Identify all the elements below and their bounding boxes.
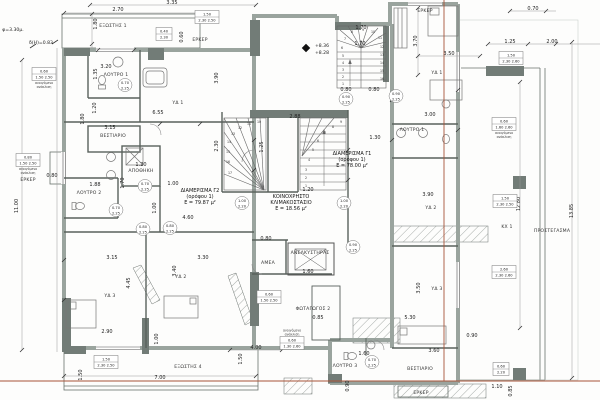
- svg-text:0.60: 0.60: [497, 365, 506, 369]
- stair-tread-number: 6: [317, 139, 319, 143]
- room-label: ΕΡΚΕΡ: [417, 8, 432, 14]
- dimension-label: 2.90: [101, 329, 112, 335]
- window-tag: 1.502.30 2.50: [195, 11, 219, 24]
- window-tag: 0.602.20: [493, 363, 509, 376]
- stair-tread-number: 11: [247, 122, 251, 126]
- svg-text:0.70: 0.70: [121, 81, 130, 85]
- svg-text:1.50 2.50: 1.50 2.50: [19, 162, 37, 166]
- dimension-label: 0.85: [312, 315, 323, 321]
- svg-text:2.30 2.60: 2.30 2.60: [495, 274, 513, 278]
- dimension-label: 1.25: [259, 141, 265, 152]
- dimension-label: 7.00: [154, 375, 165, 381]
- dimension-label: 1.50: [78, 369, 84, 380]
- stair-tread-number: 7: [324, 131, 326, 135]
- dimension-label: 11.00: [14, 199, 20, 213]
- svg-text:1.50: 1.50: [102, 358, 111, 362]
- door-tag: 0.902.25: [346, 241, 360, 254]
- bed: [164, 296, 198, 318]
- stair-tread-number: 13: [231, 132, 235, 136]
- svg-text:1.50 2.50: 1.50 2.50: [35, 76, 53, 80]
- svg-text:0.90: 0.90: [342, 95, 351, 99]
- dimension-label: 3.50: [443, 51, 454, 57]
- svg-text:0.90: 0.90: [392, 92, 401, 96]
- dimension-label: 3.70: [413, 35, 419, 46]
- stair-tread-number: 3: [342, 68, 344, 72]
- stair-tread-number: 10: [371, 30, 375, 34]
- dimension-label: 3.90: [422, 192, 433, 198]
- svg-text:2.25: 2.25: [368, 364, 376, 368]
- room-label: ΥΔ 1: [171, 100, 183, 106]
- svg-text:2.30 2.50: 2.30 2.50: [97, 364, 115, 368]
- dimension-label: 1.88: [89, 182, 100, 188]
- room-label: ΥΔ 2: [424, 205, 436, 211]
- annotation-label: +8.28: [315, 50, 329, 56]
- svg-text:0.60: 0.60: [40, 70, 49, 74]
- room-label: ΥΔ 3: [103, 293, 115, 299]
- stair-tread-number: 1: [305, 184, 307, 188]
- room-label: ΥΔ 1: [430, 70, 442, 76]
- svg-text:1.50: 1.50: [501, 197, 510, 201]
- dimension-label: 1.00: [154, 333, 160, 344]
- room-label: ΕΡΚΕΡ: [413, 390, 428, 396]
- dimension-label: 1.60: [358, 351, 369, 357]
- window-tag: 0.801.50 2.50ανοιγόμενοανάκλιση: [16, 154, 40, 176]
- stair-tread-number: 2: [305, 176, 307, 180]
- room-label: ΕΞΩΣΤΗΣ 4: [174, 364, 202, 370]
- room-label: ΛΟΥΤΡΟ 2: [77, 190, 102, 196]
- stair-tread-number: 15: [380, 69, 384, 73]
- stair-tread-number: 10: [257, 120, 261, 124]
- dimension-label: 3.00: [424, 112, 435, 118]
- svg-text:1.60 2.60: 1.60 2.60: [495, 126, 513, 130]
- dimension-label: 1.80: [93, 18, 99, 29]
- svg-text:2.25: 2.25: [342, 101, 350, 105]
- dimension-label: 1.30: [369, 135, 380, 141]
- window-tag: 0.601.60 2.60ανοιγόμενοανάκλιση: [492, 118, 516, 140]
- dimension-label: 1.60: [302, 269, 313, 275]
- svg-text:0.60: 0.60: [265, 293, 274, 297]
- svg-text:2.25: 2.25: [139, 231, 147, 235]
- toilet: [348, 353, 357, 360]
- svg-text:1.50: 1.50: [507, 54, 516, 58]
- svg-text:2.25: 2.25: [112, 212, 120, 216]
- stair-tread-number: 15: [226, 150, 230, 154]
- sink: [113, 57, 123, 67]
- stair-tread-number: 4: [342, 61, 344, 65]
- dimension-label: 3.15: [104, 125, 115, 131]
- svg-text:ανάκλιση: ανάκλιση: [37, 85, 52, 89]
- dimension-label: 2.88: [289, 114, 300, 120]
- dimension-label: 1.00: [152, 202, 158, 213]
- annotation-label: φ=3.30μ.: [2, 27, 24, 33]
- annotation-label: +8.36: [315, 43, 329, 49]
- stair-tread-number: 7: [344, 37, 346, 41]
- window-tag: 0.601.50 2.50ανοιγόμενοανάκλιση: [32, 68, 56, 90]
- door-tag: 0.702.25: [365, 356, 379, 369]
- dimension-label: 3.35: [166, 0, 177, 6]
- dimension-label: 0.80: [260, 236, 271, 242]
- bed: [398, 326, 446, 344]
- dimension-label: 5.30: [404, 315, 415, 321]
- svg-text:0.80: 0.80: [166, 224, 175, 228]
- dimension-label: 3.90: [214, 72, 220, 83]
- stair-tread-number: 17: [228, 171, 232, 175]
- room-label: ΒΕΣΤΙΑΡΙΟ: [100, 133, 126, 139]
- dimension-label: 1.70: [120, 177, 126, 188]
- stair-tread-number: 4: [308, 158, 310, 162]
- dimension-label: 0.85: [508, 385, 514, 396]
- svg-text:2.20: 2.20: [340, 205, 349, 209]
- apartment-label: Ε = 78.00 μ²: [336, 163, 368, 169]
- door-tag: 0.902.25: [389, 90, 403, 103]
- stair-tread-number: 5: [342, 54, 344, 58]
- stair-tread-number: 14: [227, 140, 231, 144]
- svg-text:1.50: 1.50: [203, 13, 212, 17]
- svg-text:2.30: 2.30: [160, 36, 169, 40]
- dimension-label: 0.80: [340, 87, 351, 93]
- floor-plan-drawing: ΔΙΑΜΕΡΙΣΜΑ Γ2(ορόφου 1)Ε = 79.87 μ²ΚΟΙΝΟ…: [0, 0, 600, 400]
- room-label: ΕΡΚΕΡ: [20, 177, 35, 183]
- dimension-label: 2.00: [546, 39, 557, 45]
- svg-text:1.30 2.60: 1.30 2.60: [283, 345, 301, 349]
- stair-tread-number: 6: [341, 46, 343, 50]
- svg-text:0.40: 0.40: [160, 30, 169, 34]
- svg-text:2.30 2.60: 2.30 2.60: [502, 60, 520, 64]
- window-tag: 0.601.50 2.50: [257, 291, 281, 304]
- door-tag: 1.002.20: [337, 197, 351, 210]
- annotation-label: δ(Η)=0.83: [29, 40, 53, 46]
- room-label: ΑΝΕΛΚΥΣΤΗΡΑΣ: [291, 250, 330, 256]
- room-label: ΚΧ 1: [501, 224, 512, 230]
- stair-tread-number: 12: [238, 126, 242, 130]
- svg-text:2.20: 2.20: [497, 371, 506, 375]
- stair-tread-number: 12: [380, 45, 384, 49]
- stair-tread-number: 9: [340, 120, 342, 124]
- door-tag: 0.902.25: [339, 93, 353, 106]
- window-tag: 0.402.30: [156, 28, 172, 41]
- svg-text:0.70: 0.70: [368, 358, 377, 362]
- room-label: ΥΔ 3: [430, 286, 442, 292]
- window-tag: 2.602.30 2.60: [492, 266, 516, 279]
- dimension-label: 4.45: [126, 277, 132, 288]
- window-tag: 0.601.30 2.60ανοιγόμενοανάκλιση: [280, 329, 304, 350]
- dimension-label: 6.55: [152, 110, 163, 116]
- svg-text:0.60: 0.60: [500, 120, 509, 124]
- room-label: ΒΕΣΤΙΑΡΙΟ: [407, 366, 433, 372]
- stair-tread-number: 1: [342, 82, 344, 86]
- door-tag: 0.802.25: [136, 223, 150, 236]
- toilet: [76, 203, 85, 210]
- svg-text:0.80: 0.80: [24, 156, 33, 160]
- dimension-label: 3.50: [416, 282, 422, 293]
- dimension-label: 0.60: [179, 31, 185, 42]
- stair-tread-number: 11: [378, 36, 382, 40]
- dimension-label: 1.50: [238, 353, 244, 364]
- stair-tread-number: 5: [312, 148, 314, 152]
- dimension-label: 1.70: [354, 41, 365, 47]
- svg-text:2.25: 2.25: [121, 87, 129, 91]
- stair-tread-number: 16: [226, 160, 230, 164]
- dimension-label: 3.15: [106, 255, 117, 261]
- room-label: ΦΩΤΑΓΩΓΟΣ 2: [296, 306, 331, 312]
- room-label: ΑΜΕΑ: [261, 260, 276, 266]
- stair-tread-number: 13: [380, 53, 384, 57]
- dimension-label: 1.00: [167, 181, 178, 187]
- svg-text:0.70: 0.70: [112, 206, 121, 210]
- stair-tread-number: 16: [380, 77, 384, 81]
- room-label: ΛΟΥΤΡΟ 1: [104, 72, 129, 78]
- dimension-label: 1.20: [92, 102, 98, 113]
- svg-text:2.25: 2.25: [141, 188, 149, 192]
- sink: [107, 153, 116, 162]
- room-label: ΛΟΥΤΡΟ 1: [400, 127, 425, 133]
- svg-text:1.50 2.50: 1.50 2.50: [260, 299, 278, 303]
- svg-text:2.60: 2.60: [500, 268, 509, 272]
- door-tag: 1.002.20: [235, 197, 249, 210]
- svg-text:1.00: 1.00: [238, 199, 247, 203]
- svg-text:2.25: 2.25: [166, 230, 174, 234]
- dimension-label: 3.40: [172, 265, 178, 276]
- dimension-label: 4.60: [182, 215, 193, 221]
- stair-tread-number: 8: [351, 30, 353, 34]
- stair-tread-number: 14: [380, 61, 384, 65]
- room-label: ΕΞΩΣΤΗΣ 1: [99, 23, 127, 29]
- apartment-label: Ε = 79.87 μ²: [184, 200, 216, 206]
- window-tag: 1.502.30 2.50: [493, 195, 517, 208]
- apartment-label: (ορόφου 1): [338, 156, 365, 163]
- svg-text:2.25: 2.25: [392, 98, 400, 102]
- dimension-label: 0.70: [527, 6, 538, 12]
- svg-text:ανάκλιση: ανάκλιση: [285, 333, 300, 337]
- svg-text:0.70: 0.70: [141, 182, 150, 186]
- svg-text:2.30 2.50: 2.30 2.50: [198, 19, 216, 23]
- stair-tread-number: 9: [362, 28, 364, 32]
- dimension-label: 2.30: [214, 140, 220, 151]
- svg-text:ανάκλιση: ανάκλιση: [497, 135, 512, 139]
- stair-tread-number: 3: [305, 168, 307, 172]
- elevation-marker: [302, 44, 310, 52]
- dimension-label: 0.90: [466, 333, 477, 339]
- door-tag: 0.702.25: [109, 204, 123, 217]
- dimension-label: 1.25: [504, 39, 515, 45]
- wardrobe: [394, 8, 407, 48]
- svg-text:2.25: 2.25: [349, 249, 357, 253]
- room-label: ΠΡΟΣΤΕΓΑΣΜΑ: [534, 228, 571, 234]
- room-label: ΛΟΥΤΡΟ 3: [333, 363, 358, 369]
- dimension-label: 2.70: [112, 7, 123, 13]
- svg-text:0.60: 0.60: [288, 339, 297, 343]
- dimension-label: 1.35: [93, 68, 99, 79]
- dimension-label: 0.80: [368, 87, 379, 93]
- apartment-label: Ε = 18.56 μ²: [275, 206, 307, 212]
- door-tag: 0.702.25: [138, 180, 152, 193]
- dimension-label: 3.60: [428, 348, 439, 354]
- dimension-label: 3.30: [197, 255, 208, 261]
- dimension-label: 0.90: [345, 380, 351, 391]
- svg-text:ανάκλιση: ανάκλιση: [21, 171, 36, 175]
- svg-text:2.30 2.50: 2.30 2.50: [496, 203, 514, 207]
- window-tag: 1.502.30 2.60: [499, 52, 523, 65]
- stair-tread-number: 8: [332, 125, 334, 129]
- door-tag: 0.802.25: [163, 222, 177, 235]
- floor-plan-canvas: ΔΙΑΜΕΡΙΣΜΑ Γ2(ορόφου 1)Ε = 79.87 μ²ΚΟΙΝΟ…: [0, 0, 600, 400]
- dimension-label: 13.85: [569, 204, 575, 218]
- dimension-label: 1.20: [135, 162, 146, 168]
- svg-text:0.90: 0.90: [349, 243, 358, 247]
- dimension-label: 4.00: [250, 345, 261, 351]
- dimension-label: 1.10: [491, 384, 502, 390]
- dimension-label: 1.80: [80, 113, 86, 124]
- apartment-label: (ορόφου 1): [186, 193, 213, 200]
- dimension-label: 0.80: [46, 173, 57, 179]
- stair-tread-number: 2: [342, 75, 344, 79]
- door-tag: 0.702.25: [118, 79, 132, 92]
- svg-text:0.80: 0.80: [139, 225, 148, 229]
- room-label: ΑΠΟΘΗΚΗ: [128, 168, 153, 174]
- window-tag: 1.502.30 2.50: [94, 356, 118, 369]
- dimension-label: 3.20: [100, 64, 111, 70]
- room-label: ΕΡΚΕΡ: [192, 37, 207, 43]
- svg-text:2.20: 2.20: [238, 205, 247, 209]
- svg-text:1.00: 1.00: [340, 199, 349, 203]
